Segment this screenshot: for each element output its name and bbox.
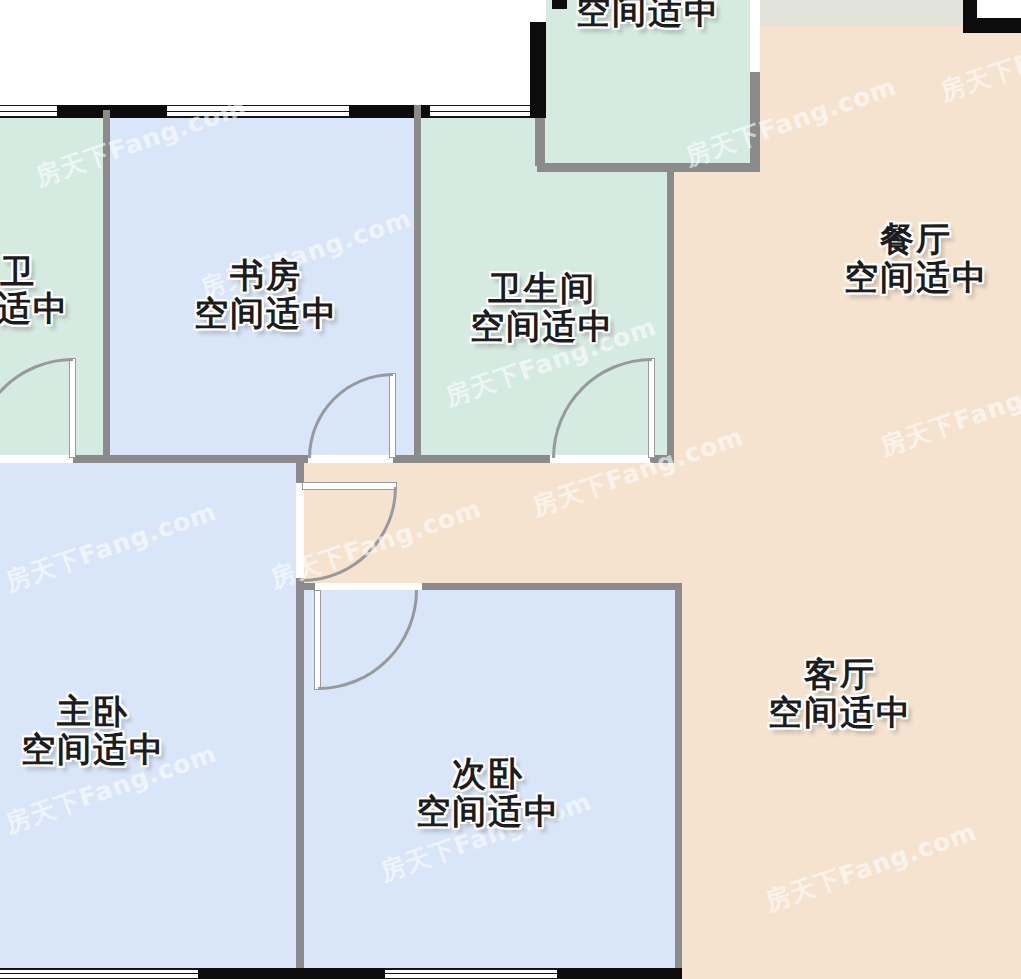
- room-status: 空间适中: [470, 307, 614, 345]
- room-label-master: 主卧 空间适中: [21, 692, 165, 768]
- room-label-bath: 卫生间 空间适中: [470, 269, 614, 345]
- wall: [530, 22, 546, 118]
- room-label-wei: 卫: [0, 252, 36, 290]
- room-name: 次卧: [416, 754, 560, 792]
- room-name: 卫生间: [470, 269, 614, 307]
- room-name: 客厅: [768, 655, 912, 693]
- room-label-top: 空间适中: [576, 0, 720, 30]
- room-label-study: 书房 空间适中: [194, 256, 338, 332]
- balcony-strip-area: [760, 0, 963, 26]
- room-label-second: 次卧 空间适中: [416, 754, 560, 830]
- room-status: 空间适中: [844, 258, 988, 296]
- wall: [393, 455, 550, 463]
- wall-notch: [977, 0, 1021, 18]
- window: [385, 968, 557, 979]
- room-status: 空间适中: [194, 294, 338, 332]
- wall: [535, 118, 545, 166]
- room-status: 空间适中: [768, 693, 912, 731]
- wall: [73, 455, 308, 463]
- window: [0, 968, 198, 979]
- room-label-dining: 餐厅 空间适中: [844, 220, 988, 296]
- room-name: 书房: [194, 256, 338, 294]
- wall: [414, 105, 421, 463]
- room-status: 空间适中: [21, 730, 165, 768]
- wall: [675, 583, 682, 979]
- room-name: 卫: [0, 252, 36, 290]
- door-opening: [315, 583, 422, 590]
- room-status: 空间适中: [576, 0, 720, 30]
- room-label-living: 客厅 空间适中: [768, 655, 912, 731]
- door-opening: [750, 0, 760, 72]
- window: [0, 105, 57, 118]
- room-name: 主卧: [21, 692, 165, 730]
- room-name: 餐厅: [844, 220, 988, 258]
- wall: [537, 163, 760, 172]
- wall: [557, 968, 682, 979]
- wall: [296, 463, 304, 483]
- wall: [57, 105, 167, 118]
- window: [430, 105, 530, 118]
- room-status: 空间适中: [416, 792, 560, 830]
- wall: [552, 0, 567, 9]
- room-status: 适中: [0, 289, 69, 327]
- wall: [296, 578, 304, 979]
- wall: [198, 968, 385, 979]
- wall: [667, 166, 674, 463]
- wall: [422, 583, 682, 590]
- room-label-wei-status: 适中: [0, 289, 69, 327]
- floor-plan: 空间适中 卫 适中 书房 空间适中 卫生间 空间适中 餐厅 空间适中 主卧 空间…: [0, 0, 1021, 979]
